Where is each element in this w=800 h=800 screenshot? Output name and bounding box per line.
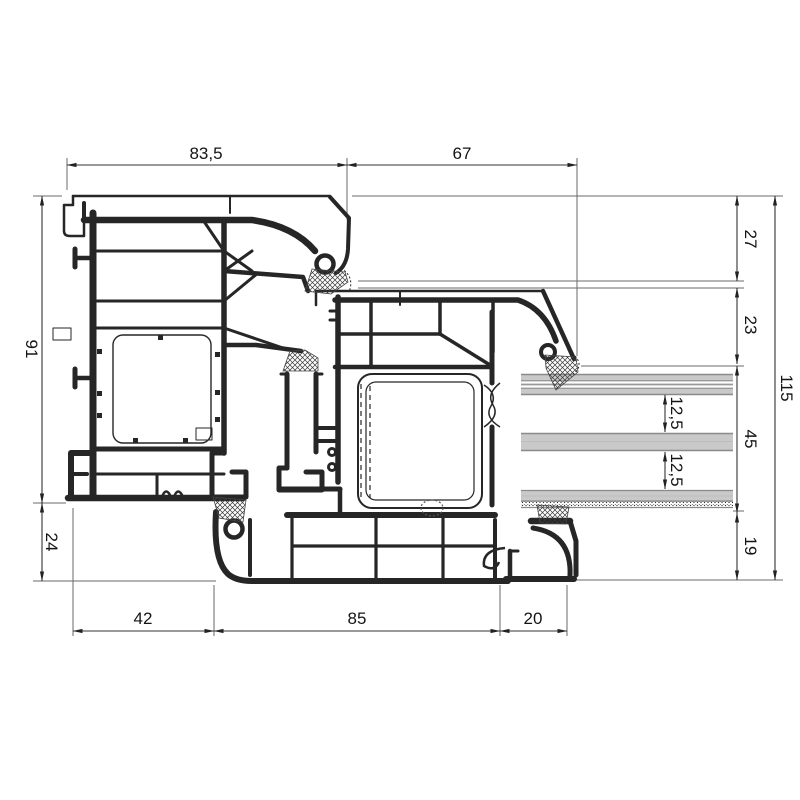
glass-pane-inner-laminated	[521, 490, 733, 508]
dim-seg-42: 42	[134, 609, 153, 628]
dim-glass-gap-upper: 12,5	[667, 396, 686, 429]
frame-anchor-tab	[53, 328, 71, 340]
dim-seg-45: 45	[741, 430, 760, 449]
sash-profile	[216, 291, 575, 581]
dim-sash-width: 67	[453, 144, 472, 163]
dim-frame-height: 91	[22, 340, 41, 359]
dim-seg-19: 19	[741, 537, 760, 556]
overlap-gasket	[283, 350, 318, 371]
chamber-bosses	[97, 335, 220, 443]
dim-seg-85: 85	[348, 609, 367, 628]
frame-profile	[53, 196, 349, 498]
dim-seg-20: 20	[524, 609, 543, 628]
sash-corner-bulb	[226, 521, 243, 538]
dimension-lines	[42, 165, 775, 631]
glazing-bead	[506, 521, 576, 579]
bead-round-face	[533, 528, 570, 576]
dim-frame-width: 83,5	[189, 144, 222, 163]
bead-gasket	[537, 505, 569, 524]
dim-total-115: 115	[777, 374, 796, 401]
frame-steel-chamber	[113, 335, 211, 443]
dim-seg-27: 27	[741, 230, 760, 249]
window-profile-section-drawing: 83,5 67 91 24 27 23 45 19 115 12,5 12,5 …	[0, 0, 800, 800]
sash-steel-chamber	[358, 374, 482, 508]
glass-unit	[521, 374, 733, 508]
dim-offset-24: 24	[42, 533, 61, 552]
gaskets	[213, 268, 579, 524]
glass-pane-middle	[521, 433, 733, 451]
dim-seg-23: 23	[741, 316, 760, 335]
technical-drawing-page: 83,5 67 91 24 27 23 45 19 115 12,5 12,5 …	[0, 0, 800, 800]
dim-glass-gap-lower: 12,5	[667, 453, 686, 486]
